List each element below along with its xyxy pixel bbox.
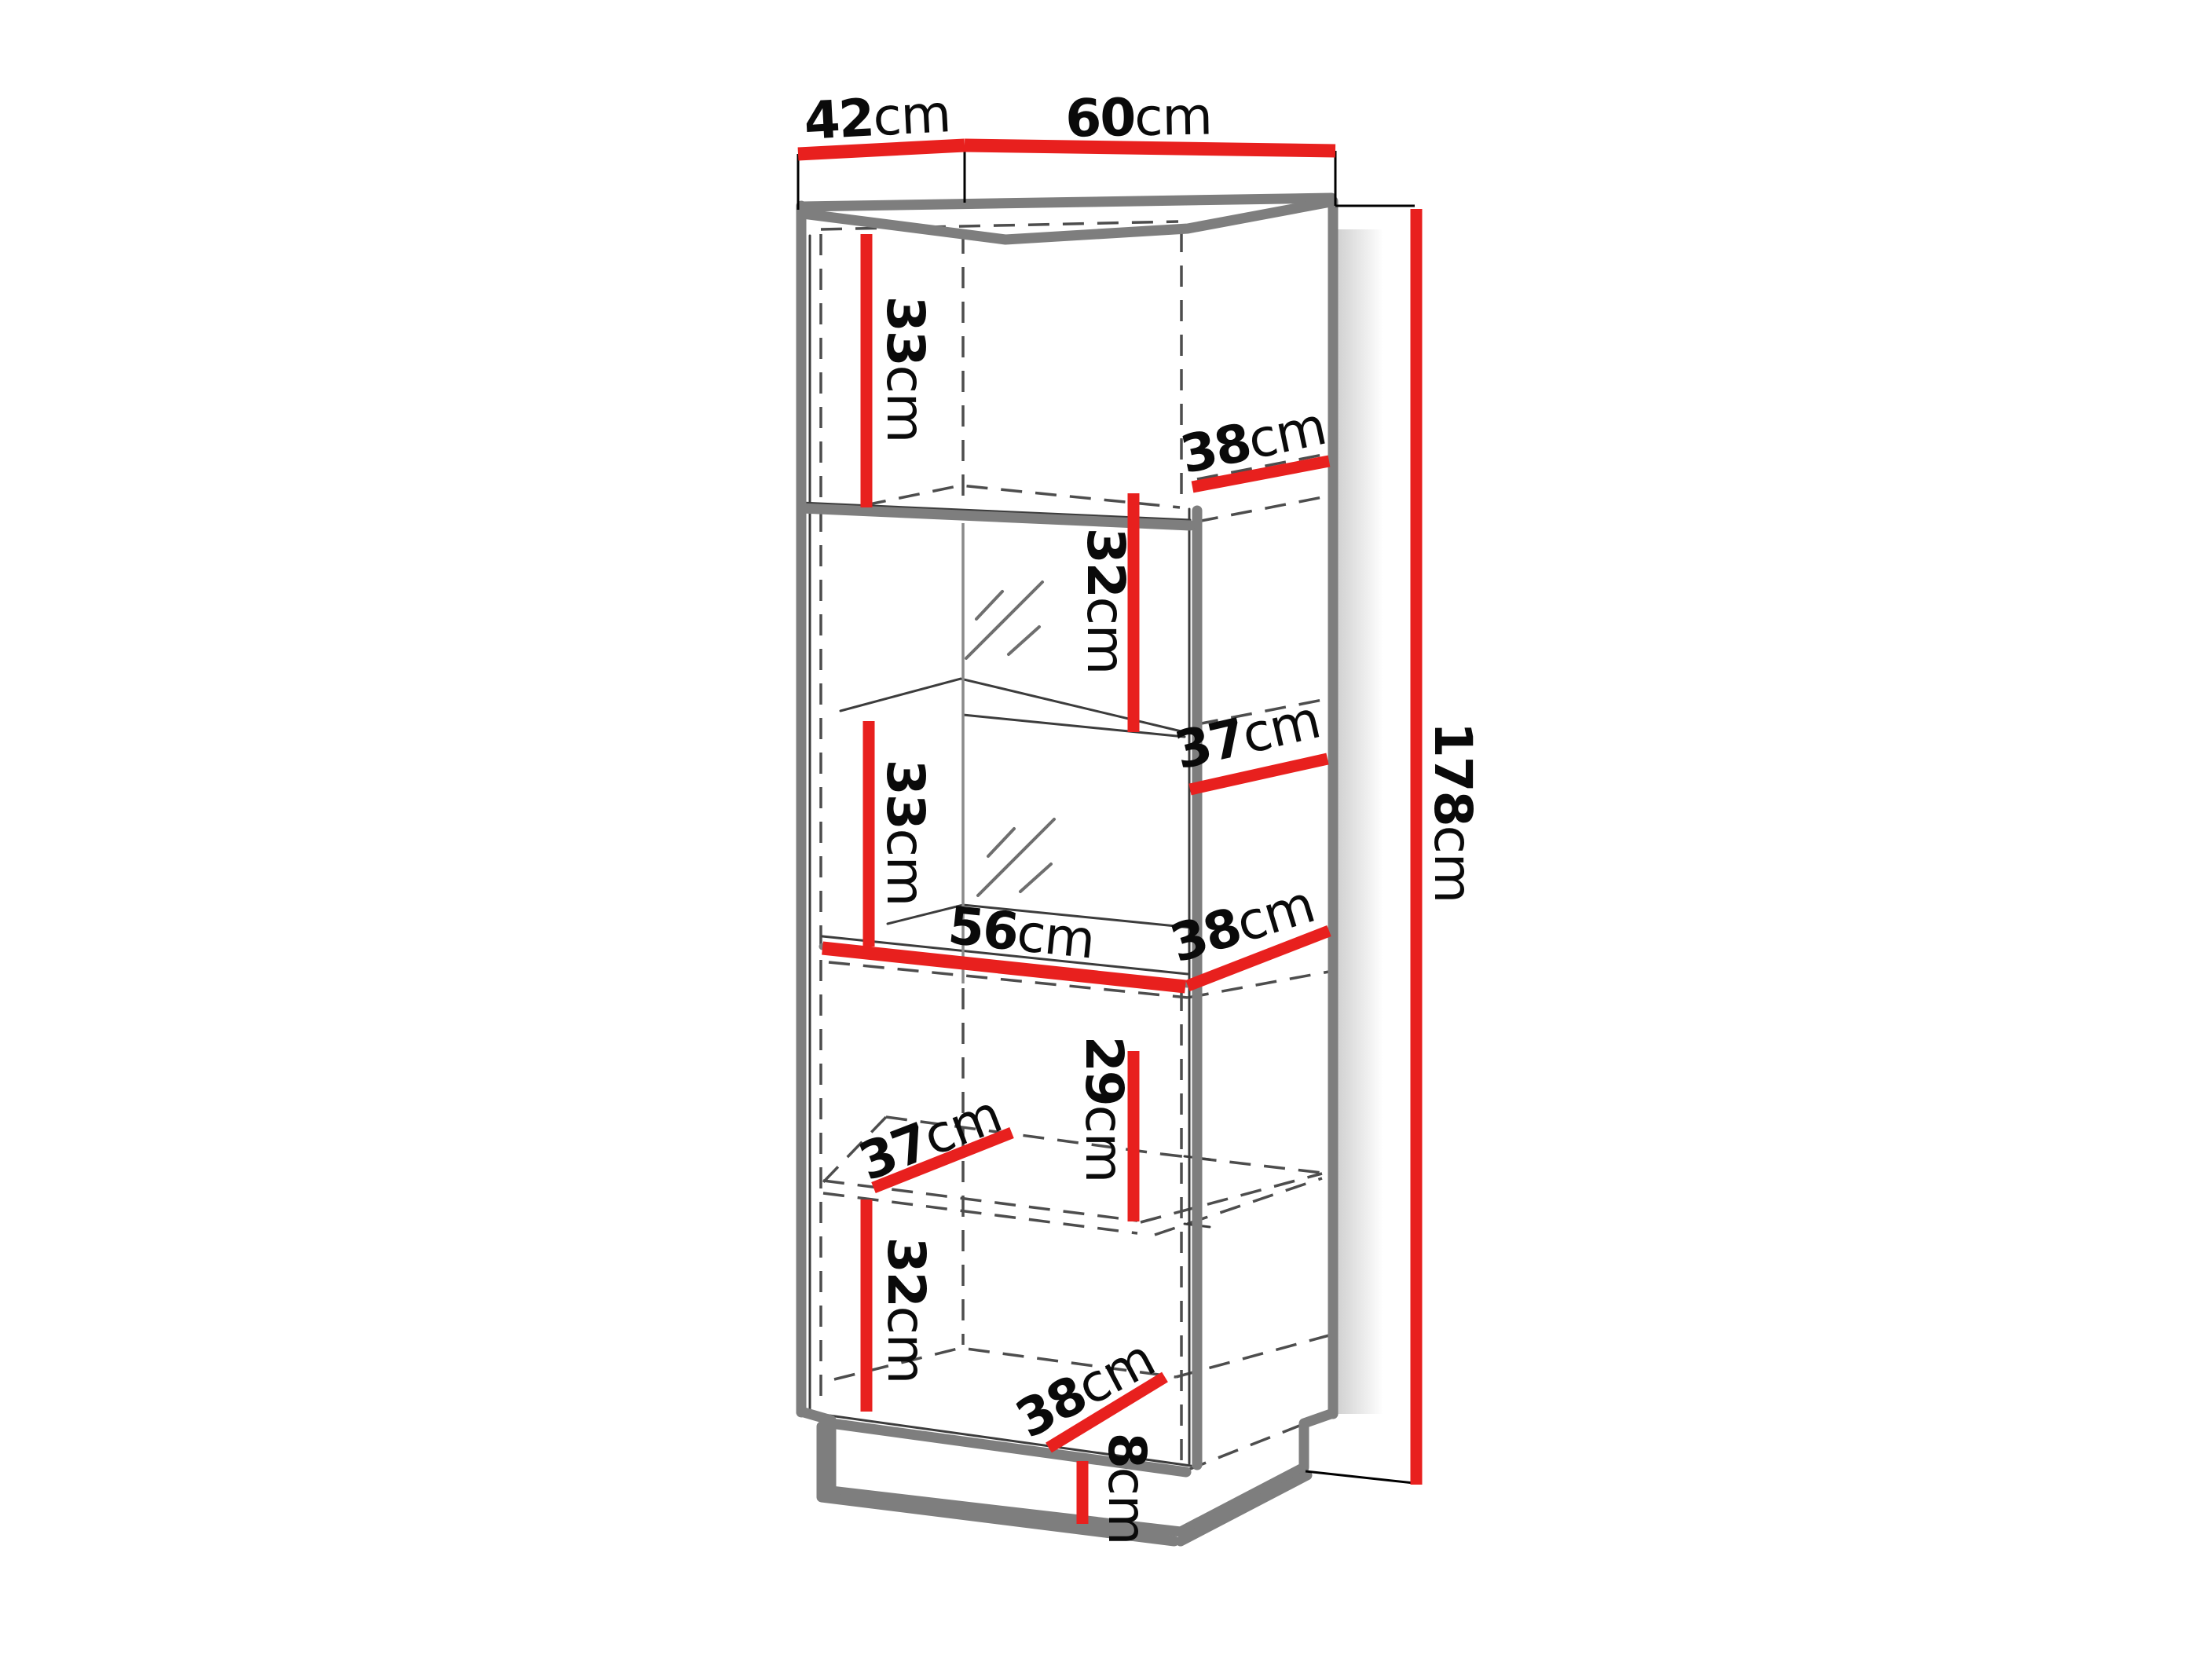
dimension-label-vitrine-upper-height: 32cm — [1075, 528, 1136, 674]
dimension-label-total-height: 178cm — [1423, 722, 1483, 903]
dimension-label-upper-niche-height: 33cm — [875, 296, 936, 442]
tick-height-bottom — [1306, 1471, 1414, 1483]
hidden-lower-shelf-side-b — [1155, 1178, 1322, 1235]
glass-reflection — [976, 591, 1002, 619]
glass-reflection — [978, 819, 1054, 895]
cabinet-dimension-diagram: 42cm 60cm 178cm 33cm 38cm 32cm 37cm 33cm… — [0, 0, 2212, 1659]
dimension-label-lower-upper-height: 29cm — [1074, 1036, 1134, 1182]
glass-reflection — [988, 829, 1014, 856]
dimension-label-plinth-height: 8cm — [1097, 1433, 1157, 1545]
glass-reflection — [1020, 864, 1051, 892]
glass-reflection — [966, 582, 1042, 658]
dimension-label-top-depth: 42cm — [803, 83, 952, 152]
dimension-label-lower-shelf-depth: 37cm — [851, 1084, 1009, 1193]
glass-reflection — [1009, 627, 1039, 654]
glass-pane-marks — [966, 582, 1054, 895]
dimension-label-vitrine-lower-height: 33cm — [875, 760, 936, 906]
plinth-shadow-right — [1181, 1475, 1307, 1541]
cabinet-side-shadow — [1338, 229, 1383, 1414]
glass-shelf-front-edge — [963, 715, 1185, 737]
hidden-niche-floor-side-b — [1197, 496, 1331, 522]
diagram-canvas: 42cm 60cm 178cm 33cm 38cm 32cm 37cm 33cm… — [0, 0, 2212, 1659]
hidden-lower-shelf-side-a — [1141, 1174, 1322, 1222]
dimension-label-top-width: 60cm — [1065, 86, 1213, 148]
dimension-label-lower-bottom-height: 32cm — [876, 1237, 936, 1383]
top-back-edge — [801, 198, 1331, 207]
